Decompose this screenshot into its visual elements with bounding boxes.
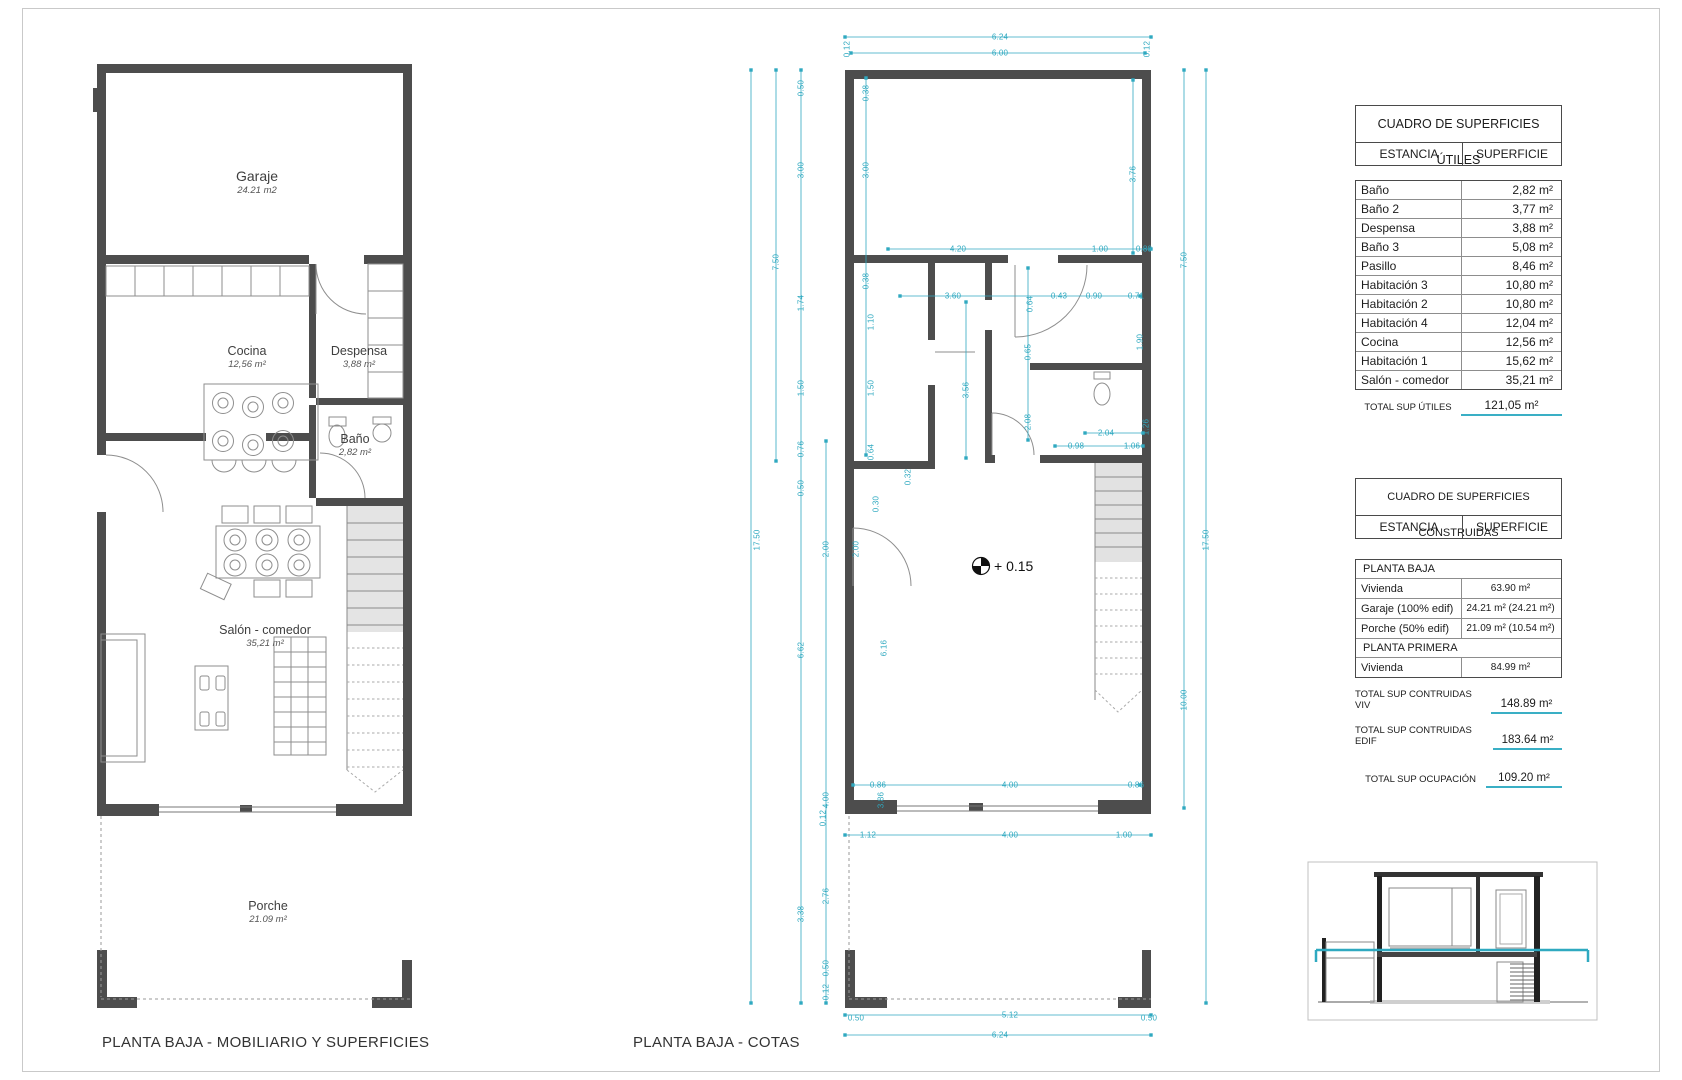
table-row: Porche (50% edif)21.09 m² (10.54 m²) [1356,619,1561,639]
area-cell: 24.21 m² (24.21 m²) [1462,599,1561,618]
dimension-label: 0.32 [904,469,913,485]
area-cell: 10,80 m² [1462,295,1561,313]
dimension-label: 0.80 [1136,245,1152,254]
dimension-label: 0.50 [797,80,806,96]
dimension-label: 4.00 [1002,781,1018,790]
room-cell: PLANTA BAJA [1356,560,1561,578]
table-title: CUADRO DE SUPERFICIES CONSTRUIDAS [1355,478,1562,516]
dimension-label: 3.38 [797,906,806,922]
table-row: Salón - comedor35,21 m² [1356,371,1561,389]
dimension-label: 7.50 [772,254,781,270]
total-value: 109.20 m² [1486,772,1562,788]
table-row: Baño2,82 m² [1356,181,1561,200]
dimension-label: 5.12 [1002,1011,1018,1020]
room-cell: Habitación 4 [1356,314,1462,332]
room-cell: Porche (50% edif) [1356,619,1462,638]
room-cell: Habitación 2 [1356,295,1462,313]
table-row: Habitación 310,80 m² [1356,276,1561,295]
total-row: TOTAL SUP CONTRUIDAS VIV148.89 m² [1355,689,1562,714]
room-cell: Salón - comedor [1356,371,1462,389]
column-header-estancia: ESTANCIA [1356,516,1463,538]
area-cell: 63.90 m² [1462,579,1561,598]
room-cell: PLANTA PRIMERA [1356,639,1561,657]
dimension-label: 1.00 [1092,245,1108,254]
dimension-label: 4.00 [1002,831,1018,840]
dimension-label: 0.76 [797,441,806,457]
room-cell: Baño [1356,181,1462,199]
dimension-label: 6.16 [880,640,889,656]
dimension-label: 0.50 [848,1014,864,1023]
area-cell: 15,62 m² [1462,352,1561,370]
dimension-label: 0.86 [1128,781,1144,790]
dimension-label: 1.00 [1116,831,1132,840]
area-cell: 84.99 m² [1462,658,1561,677]
dimension-label: 1.12 [860,831,876,840]
dimension-label: 6.00 [992,49,1008,58]
area-cell: 5,08 m² [1462,238,1561,256]
dimension-label: 1.26 [1142,419,1151,435]
area-cell: 3,77 m² [1462,200,1561,218]
table-body: Baño2,82 m²Baño 23,77 m²Despensa3,88 m²B… [1355,180,1562,390]
drawing-sheet: Garaje24.21 m2Cocina12,56 m²Despensa3,88… [0,0,1682,1080]
table-header: ESTANCIA SUPERFICIE [1355,143,1562,166]
dimension-label: 2.00 [822,541,831,557]
room-cell: Garaje (100% edif) [1356,599,1462,618]
dimension-label: 0.65 [1024,344,1033,360]
dimension-label: 17.50 [1202,529,1211,550]
area-cell: 3,88 m² [1462,219,1561,237]
total-value: 148.89 m² [1491,698,1562,714]
dimension-label: 3.00 [797,162,806,178]
dimension-label: 6.24 [992,1031,1008,1040]
dimension-label: 6.62 [797,642,806,658]
dimension-label: 7.50 [1180,252,1189,268]
dimension-label: 3.76 [1129,166,1138,182]
dimension-label: 0.71 [1128,292,1144,301]
room-cell: Despensa [1356,219,1462,237]
room-cell: Cocina [1356,333,1462,351]
dimension-label: 0.12 [819,810,828,826]
table-row: Pasillo8,46 m² [1356,257,1561,276]
dimension-label: 1.74 [797,295,806,311]
dimension-label: 0.12 [1143,41,1152,57]
table-totals: TOTAL SUP CONTRUIDAS VIV148.89 m²TOTAL S… [1355,689,1562,788]
table-row: Vivienda84.99 m² [1356,658,1561,677]
table-body: PLANTA BAJAVivienda63.90 m²Garaje (100% … [1355,559,1562,678]
area-cell: 21.09 m² (10.54 m²) [1462,619,1561,638]
dimension-label: 0.50 [1141,1014,1157,1023]
dimension-label: 2.76 [822,888,831,904]
dimension-label: 0.38 [862,273,871,289]
dimension-label: 4.00 [822,792,831,808]
dimension-label: 0.64 [1026,296,1035,312]
dimension-label: 0.50 [822,960,831,976]
room-cell: Vivienda [1356,579,1462,598]
table-row: Cocina12,56 m² [1356,333,1561,352]
dimension-label: 1.10 [867,314,876,330]
dimension-label: 0.86 [870,781,886,790]
dimension-label: 0.38 [862,85,871,101]
table-row: Habitación 210,80 m² [1356,295,1561,314]
dimension-label: 0.64 [867,444,876,460]
dimension-label: 0.43 [1051,292,1067,301]
column-header-estancia: ESTANCIA [1356,143,1463,165]
table-row: Habitación 115,62 m² [1356,352,1561,371]
table-row: Habitación 412,04 m² [1356,314,1561,333]
room-cell: Habitación 3 [1356,276,1462,294]
table-row: Despensa3,88 m² [1356,219,1561,238]
dimension-label: 0.98 [1068,442,1084,451]
room-cell: Baño 2 [1356,200,1462,218]
total-label: TOTAL SUP CONTRUIDAS VIV [1355,689,1481,714]
room-cell: Habitación 1 [1356,352,1462,370]
level-marker-text: + 0.15 [994,558,1033,574]
total-label: TOTAL SUP CONTRUIDAS EDIF [1355,725,1483,750]
dimension-label: 2.00 [852,541,861,557]
area-cell: 10,80 m² [1462,276,1561,294]
total-value: 121,05 m² [1461,398,1562,416]
table-row: Garaje (100% edif)24.21 m² (24.21 m²) [1356,599,1561,619]
caption-cotas-plan: PLANTA BAJA - COTAS [633,1034,800,1051]
table-header: ESTANCIA SUPERFICIE [1355,516,1562,539]
table-section-row: PLANTA BAJA [1356,560,1561,579]
room-cell: Baño 3 [1356,238,1462,256]
room-cell: Vivienda [1356,658,1462,677]
column-header-superficie: SUPERFICIE [1463,516,1561,538]
dimension-label: 0.50 [797,480,806,496]
dimension-label: 3.56 [962,382,971,398]
total-label: TOTAL SUP OCUPACIÓN [1365,774,1476,788]
dimension-label: 1.50 [797,380,806,396]
area-cell: 12,04 m² [1462,314,1561,332]
dimension-label: 10.00 [1180,689,1189,710]
dimension-label: 0.30 [872,496,881,512]
dimension-label: 3.00 [862,162,871,178]
dimension-label: 4.20 [950,245,966,254]
total-value: 183.64 m² [1493,734,1562,750]
dimension-label: 1.50 [867,380,876,396]
area-cell: 35,21 m² [1462,371,1561,389]
total-row: TOTAL SUP CONTRUIDAS EDIF183.64 m² [1355,725,1562,750]
table-superficies-utiles: CUADRO DE SUPERFICIES ÚTILES ESTANCIA SU… [1355,105,1562,416]
area-cell: 8,46 m² [1462,257,1561,275]
dimension-label: 0.90 [1086,292,1102,301]
dimension-label: 0.12 [843,41,852,57]
dimension-label: 1.90 [1136,334,1145,350]
total-label: TOTAL SUP ÚTILES [1355,402,1461,416]
column-header-superficie: SUPERFICIE [1463,143,1561,165]
total-sup-utiles-row: TOTAL SUP ÚTILES 121,05 m² [1355,398,1562,416]
table-superficies-construidas: CUADRO DE SUPERFICIES CONSTRUIDAS ESTANC… [1355,478,1562,788]
dimension-label: 17.50 [753,529,762,550]
table-row: Baño 35,08 m² [1356,238,1561,257]
dimension-label: 2.04 [1098,429,1114,438]
dimension-label: 3.86 [877,792,886,808]
dimension-label: 6.24 [992,33,1008,42]
total-row: TOTAL SUP OCUPACIÓN109.20 m² [1355,772,1562,788]
table-row: Baño 23,77 m² [1356,200,1561,219]
table-section-row: PLANTA PRIMERA [1356,639,1561,658]
dimension-label: 2.08 [1024,414,1033,430]
table-row: Vivienda63.90 m² [1356,579,1561,599]
caption-left-plan: PLANTA BAJA - MOBILIARIO Y SUPERFICIES [102,1034,429,1051]
dimension-label: 0.12 [822,984,831,1000]
dimension-label: 3.60 [945,292,961,301]
area-cell: 2,82 m² [1462,181,1561,199]
dimension-label: 1.06 [1124,442,1140,451]
room-cell: Pasillo [1356,257,1462,275]
area-cell: 12,56 m² [1462,333,1561,351]
table-title: CUADRO DE SUPERFICIES ÚTILES [1355,105,1562,143]
